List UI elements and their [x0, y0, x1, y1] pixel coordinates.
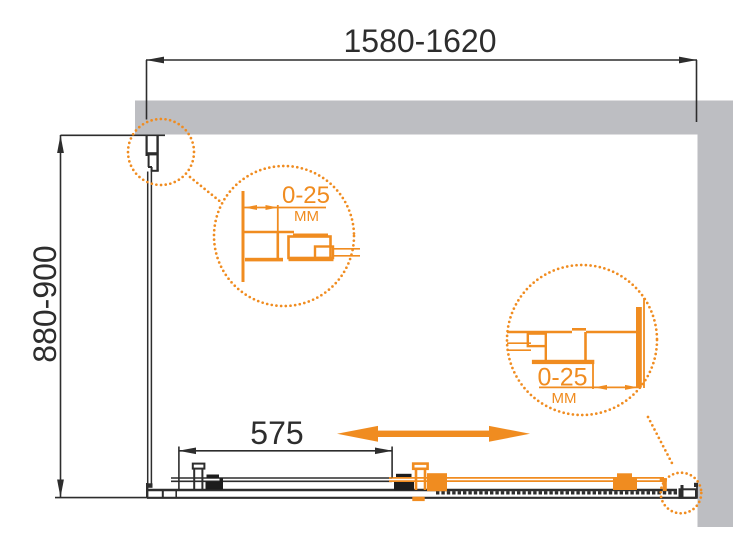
svg-text:575: 575 [250, 415, 303, 451]
svg-text:1580-1620: 1580-1620 [343, 23, 496, 59]
svg-text:MM: MM [552, 390, 577, 407]
svg-text:0-25: 0-25 [537, 364, 587, 392]
svg-text:MM: MM [294, 208, 319, 225]
svg-text:0-25: 0-25 [282, 182, 330, 209]
svg-text:880-900: 880-900 [27, 245, 63, 362]
